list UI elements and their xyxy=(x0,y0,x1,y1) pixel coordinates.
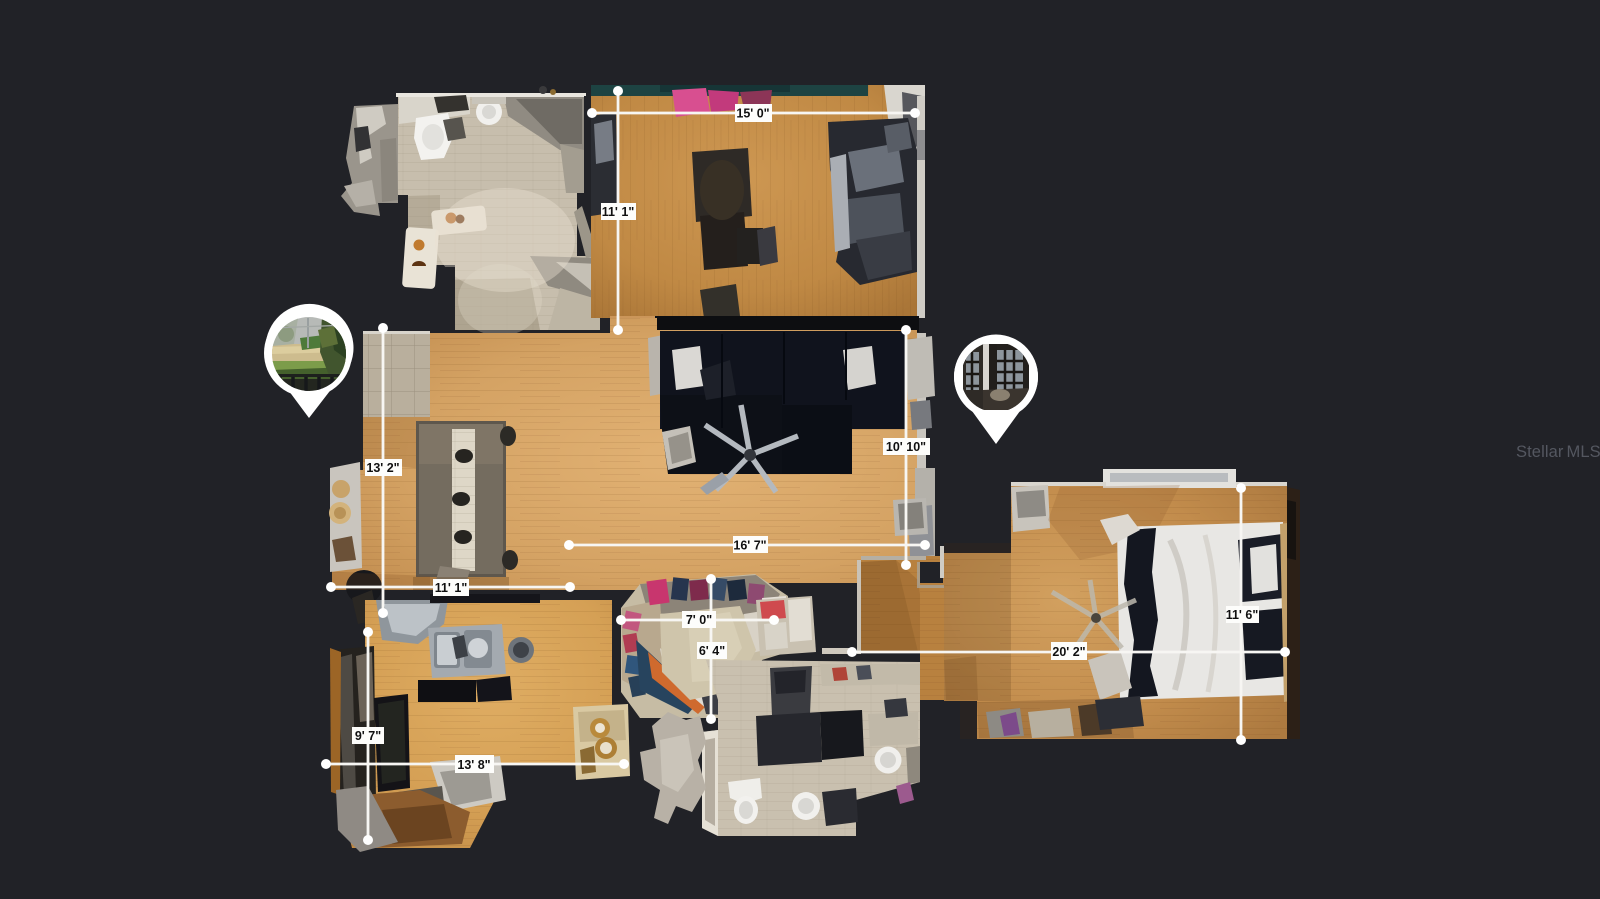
svg-text:13' 2": 13' 2" xyxy=(366,461,399,475)
svg-text:9' 7": 9' 7" xyxy=(355,729,381,743)
svg-text:11' 1": 11' 1" xyxy=(602,205,635,219)
svg-text:11' 6": 11' 6" xyxy=(1226,608,1259,622)
svg-text:15' 0": 15' 0" xyxy=(736,107,769,121)
svg-text:11' 1": 11' 1" xyxy=(435,581,468,595)
svg-text:6' 4": 6' 4" xyxy=(699,644,725,658)
svg-text:20' 2": 20' 2" xyxy=(1052,645,1085,659)
svg-text:10' 10": 10' 10" xyxy=(886,440,926,454)
svg-text:13' 8": 13' 8" xyxy=(457,758,490,772)
svg-text:StellarMLS: StellarMLS xyxy=(1516,443,1600,461)
svg-text:7' 0": 7' 0" xyxy=(686,613,712,627)
svg-text:16' 7": 16' 7" xyxy=(733,539,766,553)
